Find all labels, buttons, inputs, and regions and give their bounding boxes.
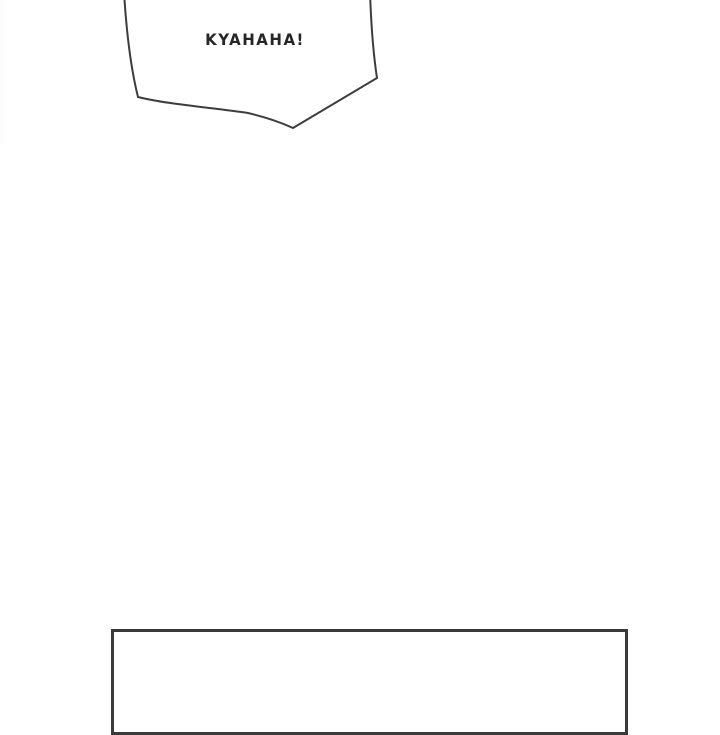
speech-bubble-outline	[0, 0, 450, 160]
speech-bubble-text: KYAHAHA!	[140, 31, 370, 50]
comic-page: KYAHAHA!	[0, 0, 720, 700]
next-panel-border	[111, 629, 628, 735]
speech-bubble: KYAHAHA!	[0, 0, 450, 160]
